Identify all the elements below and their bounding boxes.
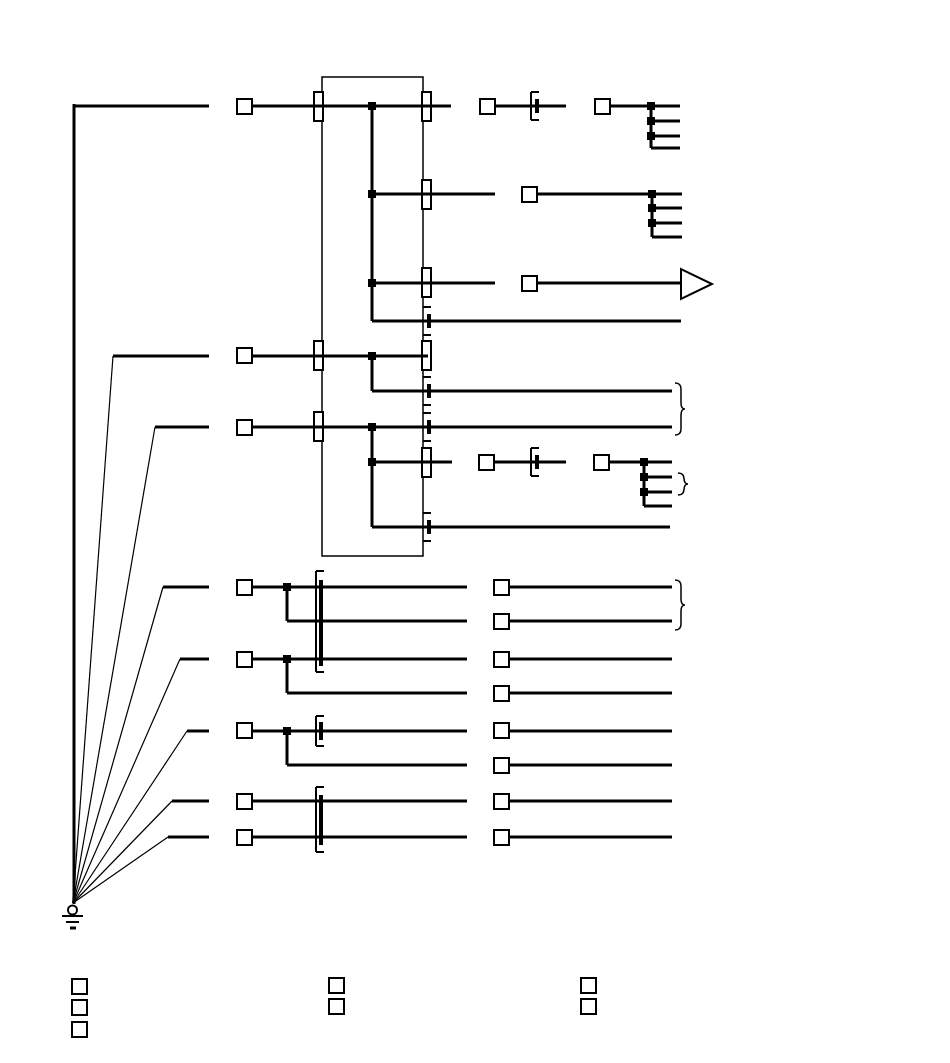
ground-fan-wire bbox=[73, 731, 187, 903]
connector-terminal-square bbox=[494, 758, 509, 773]
connector-terminal-square bbox=[237, 580, 252, 595]
wire-junction-dot bbox=[647, 117, 655, 125]
wire-junction-dot bbox=[368, 352, 376, 360]
connector-terminal-square bbox=[522, 187, 537, 202]
wire-junction-dot bbox=[640, 458, 648, 466]
ground-fan-wire bbox=[73, 587, 163, 903]
connector-terminal-square bbox=[237, 830, 252, 845]
wire-junction-dot bbox=[368, 190, 376, 198]
wire-junction-dot bbox=[283, 583, 291, 591]
arrow-terminal bbox=[681, 269, 712, 299]
connector-terminal-square bbox=[522, 276, 537, 291]
legend-key-square bbox=[581, 999, 596, 1014]
wire-junction-dot bbox=[640, 488, 648, 496]
legend-key-square bbox=[329, 978, 344, 993]
connector-terminal-square bbox=[237, 723, 252, 738]
connector-terminal-square bbox=[237, 348, 252, 363]
legend-key-square bbox=[581, 978, 596, 993]
legend-key-square bbox=[72, 1000, 87, 1015]
wiring-diagram bbox=[0, 0, 950, 1063]
connector-terminal-square bbox=[494, 614, 509, 629]
wire-junction-dot bbox=[368, 458, 376, 466]
wire-junction-dot bbox=[648, 219, 656, 227]
wire-junction-dot bbox=[368, 102, 376, 110]
wire-junction-dot bbox=[368, 279, 376, 287]
legend-key-square bbox=[72, 979, 87, 994]
grouping-brace bbox=[675, 580, 685, 630]
connector-terminal-square bbox=[494, 794, 509, 809]
legend-key-square bbox=[329, 999, 344, 1014]
wire-junction-dot bbox=[647, 102, 655, 110]
connector-terminal-square bbox=[494, 652, 509, 667]
wire-junction-dot bbox=[648, 190, 656, 198]
connector-terminal-square bbox=[494, 580, 509, 595]
wire-junction-dot bbox=[647, 132, 655, 140]
connector-terminal-square bbox=[595, 99, 610, 114]
connector-terminal-square bbox=[237, 652, 252, 667]
wire-junction-dot bbox=[283, 655, 291, 663]
grouping-brace bbox=[675, 383, 685, 435]
connector-terminal-square bbox=[494, 830, 509, 845]
wire-junction-dot bbox=[283, 727, 291, 735]
connector-terminal-square bbox=[479, 455, 494, 470]
ground-fan-wire bbox=[73, 356, 113, 903]
legend-key-square bbox=[72, 1022, 87, 1037]
connector-terminal-square bbox=[237, 99, 252, 114]
wire-junction-dot bbox=[640, 473, 648, 481]
connector-terminal-square bbox=[494, 723, 509, 738]
ground-symbol-circle bbox=[68, 906, 77, 915]
wire-junction-dot bbox=[368, 423, 376, 431]
grouping-brace bbox=[678, 473, 688, 495]
connector-terminal-square bbox=[480, 99, 495, 114]
connector-terminal-square bbox=[494, 686, 509, 701]
schematic-svg bbox=[0, 0, 950, 1063]
connector-terminal-square bbox=[237, 794, 252, 809]
connector-terminal-square bbox=[594, 455, 609, 470]
connector-terminal-square bbox=[237, 420, 252, 435]
wire-junction-dot bbox=[648, 204, 656, 212]
page: { "canvas": { "width": 950, "height": 10… bbox=[0, 0, 950, 1063]
